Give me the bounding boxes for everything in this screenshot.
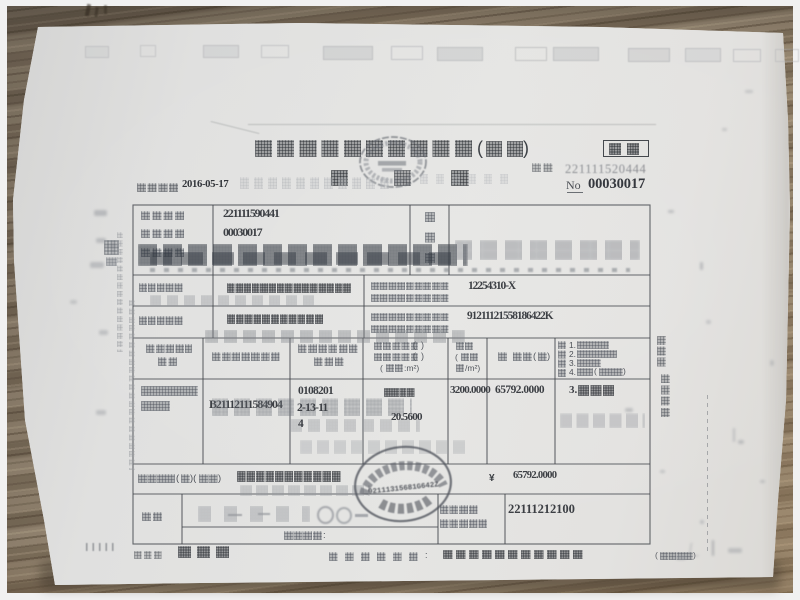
svg-text:92111315681G642Z: 92111315681G642Z <box>368 481 440 496</box>
